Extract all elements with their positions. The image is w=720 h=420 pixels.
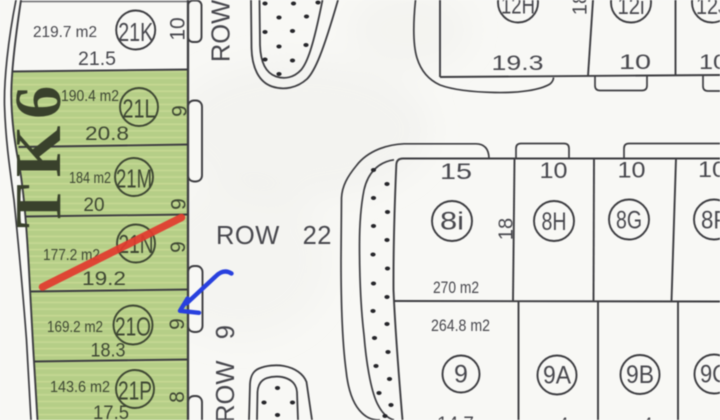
svg-text:169.2 m2: 169.2 m2 xyxy=(47,319,103,336)
svg-text:21L: 21L xyxy=(123,94,156,124)
svg-text:9B: 9B xyxy=(626,361,654,389)
svg-text:10: 10 xyxy=(167,17,190,40)
svg-text:10: 10 xyxy=(698,157,720,182)
svg-text:18: 18 xyxy=(570,0,592,15)
svg-text:219.7 m2: 219.7 m2 xyxy=(33,24,97,41)
svg-text:4: 4 xyxy=(642,415,653,420)
svg-text:143.6 m2: 143.6 m2 xyxy=(50,379,110,396)
svg-text:12H: 12H xyxy=(501,0,535,20)
svg-text:ROW 9: ROW 9 xyxy=(212,325,240,420)
svg-text:8: 8 xyxy=(166,391,189,403)
svg-text:21M: 21M xyxy=(116,164,152,194)
svg-text:20: 20 xyxy=(83,195,104,216)
svg-text:12J: 12J xyxy=(696,0,720,20)
svg-text:184 m2: 184 m2 xyxy=(69,170,111,187)
svg-text:9: 9 xyxy=(454,361,468,389)
svg-text:10: 10 xyxy=(699,51,720,74)
svg-text:10: 10 xyxy=(619,51,651,74)
svg-text:21P: 21P xyxy=(118,376,152,406)
svg-text:15: 15 xyxy=(440,159,472,184)
svg-text:8i: 8i xyxy=(440,208,464,236)
svg-text:10: 10 xyxy=(618,158,646,183)
svg-text:9A: 9A xyxy=(543,362,571,390)
svg-text:9: 9 xyxy=(167,241,190,253)
svg-text:TK6: TK6 xyxy=(2,79,75,228)
svg-text:8F: 8F xyxy=(701,207,720,235)
svg-text:9: 9 xyxy=(168,198,191,210)
svg-text:19.2: 19.2 xyxy=(82,269,126,290)
svg-text:21K: 21K xyxy=(118,17,153,47)
svg-text:ROW: ROW xyxy=(208,0,236,62)
svg-text:ROW 22: ROW 22 xyxy=(216,222,332,250)
svg-text:10: 10 xyxy=(540,158,568,183)
svg-text:21O: 21O xyxy=(115,312,151,342)
svg-text:18.3: 18.3 xyxy=(91,341,126,362)
svg-text:264.8 m2: 264.8 m2 xyxy=(431,317,490,335)
svg-text:270 m2: 270 m2 xyxy=(433,279,479,297)
svg-text:8H: 8H xyxy=(542,208,567,236)
svg-text:20.8: 20.8 xyxy=(85,124,129,145)
svg-text:17.5: 17.5 xyxy=(93,403,129,420)
svg-text:9C: 9C xyxy=(700,361,720,389)
svg-text:12i: 12i xyxy=(618,0,645,20)
svg-text:14.7: 14.7 xyxy=(437,414,474,420)
svg-text:8G: 8G xyxy=(616,207,642,235)
svg-text:9: 9 xyxy=(166,318,189,330)
svg-text:4: 4 xyxy=(558,415,569,420)
svg-text:21.5: 21.5 xyxy=(78,49,116,70)
svg-text:19.3: 19.3 xyxy=(492,52,544,75)
svg-text:9: 9 xyxy=(169,105,192,117)
svg-text:18: 18 xyxy=(496,218,518,240)
